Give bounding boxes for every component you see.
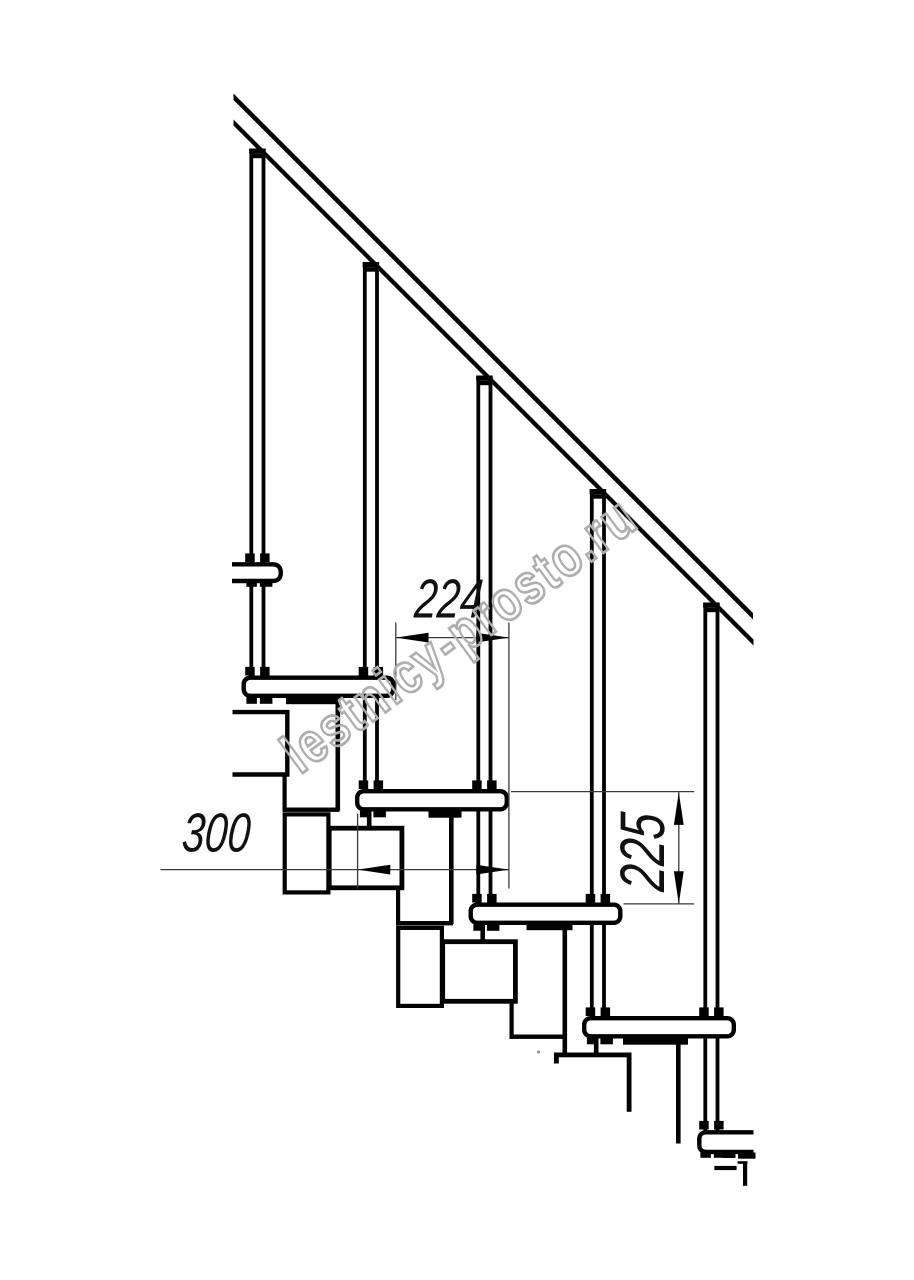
svg-text:300: 300 [180,803,253,864]
svg-text:225: 225 [607,809,677,894]
